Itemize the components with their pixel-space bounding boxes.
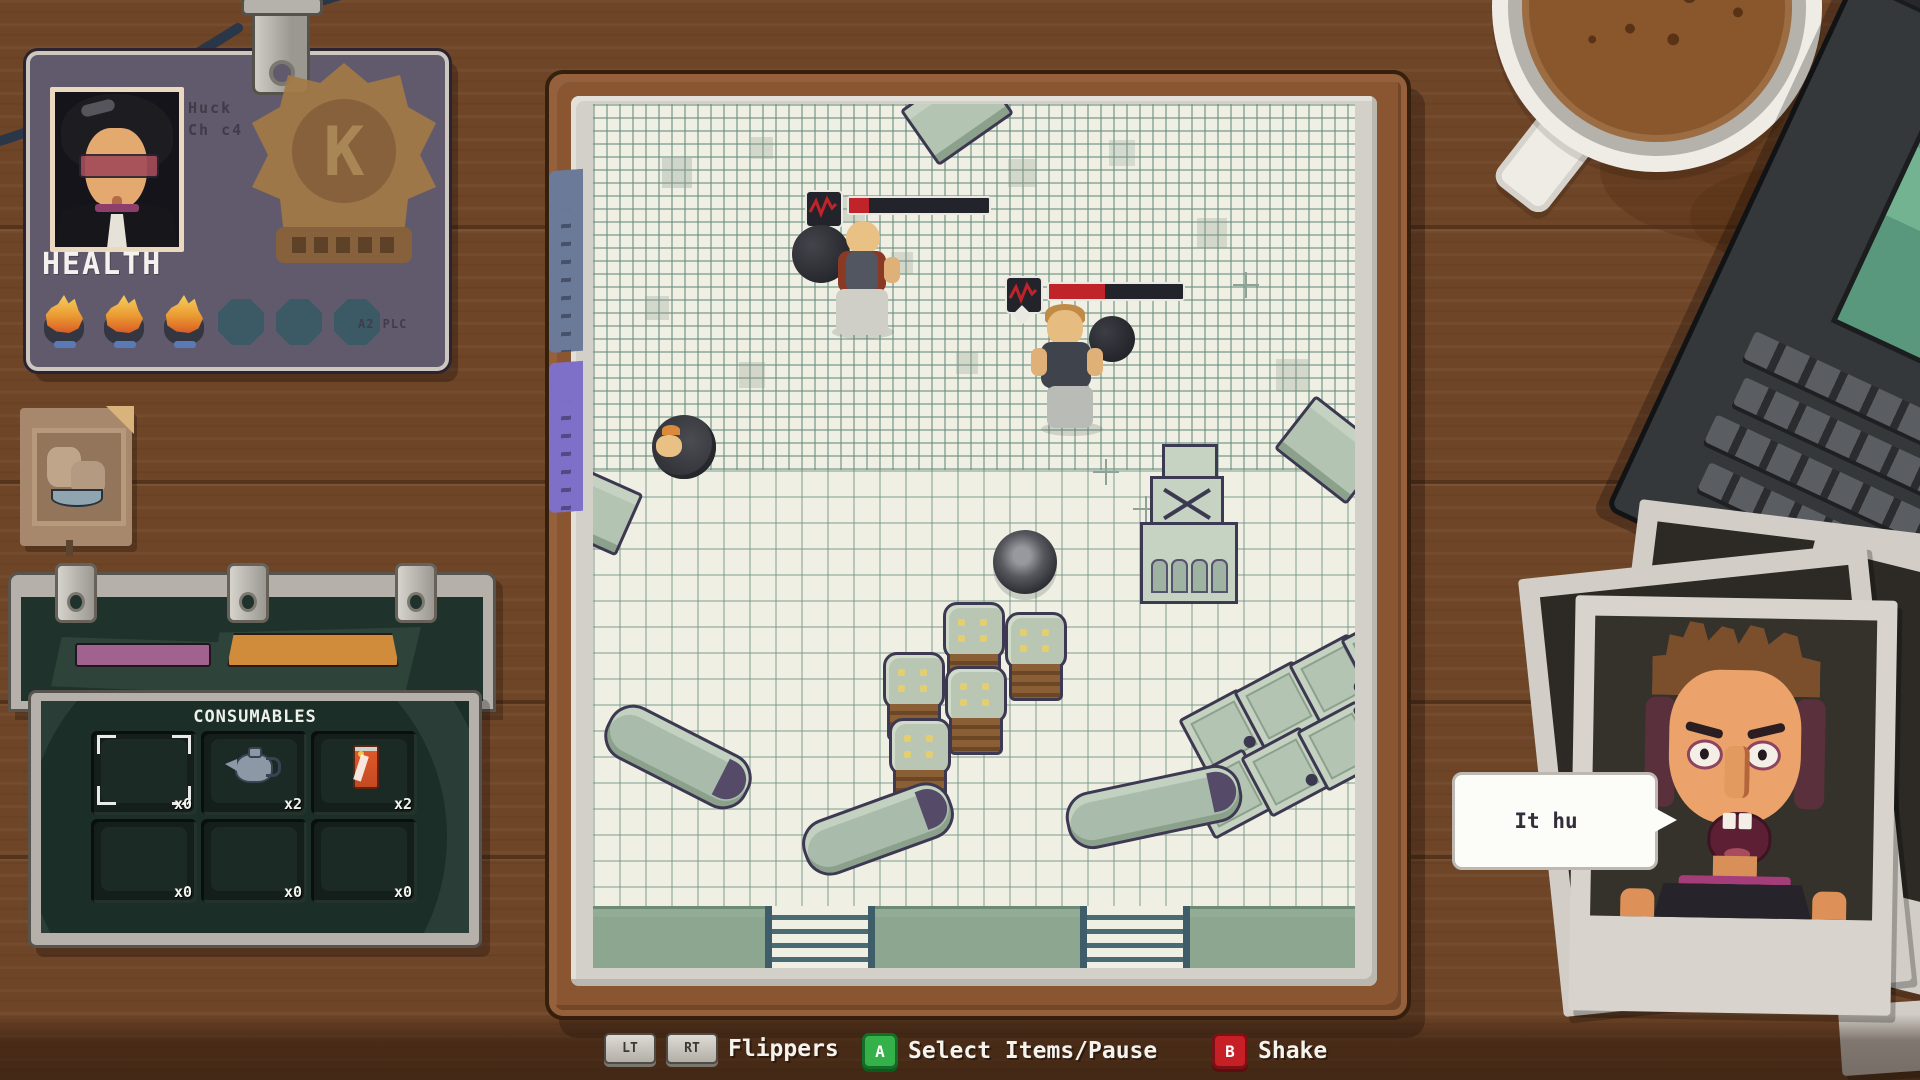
- dish-icon: [51, 489, 103, 507]
- badge-photo: [50, 87, 184, 252]
- case-hinge: [395, 563, 437, 623]
- enemy2-legs: [1047, 386, 1093, 428]
- consumable-slot-empty[interactable]: x0: [201, 819, 307, 903]
- ladder: [765, 906, 875, 968]
- bottom-ledge: [593, 906, 1355, 968]
- bookmark-tab-purple: [549, 361, 583, 513]
- enemy2-health-bar: [1047, 282, 1185, 301]
- rolled-enemy-face: [656, 435, 682, 457]
- emblem-letter: K: [324, 113, 365, 192]
- selection-cursor: [97, 786, 116, 805]
- kettle-icon: [235, 753, 273, 783]
- consumable-slot-selected[interactable]: x0: [91, 731, 197, 815]
- flame-icon: [165, 295, 203, 333]
- slot-count: x2: [394, 795, 412, 813]
- health-pip-full: [158, 293, 210, 351]
- selection-cursor: [97, 735, 116, 754]
- flame-icon: [105, 295, 143, 333]
- health-pip-empty: [276, 299, 322, 345]
- a-button[interactable]: A: [862, 1033, 898, 1069]
- rolled-enemy-ball: [652, 415, 716, 479]
- health-label: HEALTH: [42, 247, 162, 282]
- rolled-enemy-hair: [662, 425, 680, 435]
- portrait-glasses: [79, 154, 159, 178]
- enemy2-arm: [1031, 348, 1047, 376]
- slot-count: x0: [394, 883, 412, 901]
- package-label: [32, 428, 126, 526]
- polaroid-photo: [1590, 616, 1877, 921]
- health-pips: [38, 293, 392, 351]
- playfield-paper: [593, 104, 1355, 968]
- shoulder: [1812, 891, 1847, 920]
- crate-arched: [1140, 522, 1238, 604]
- lt-button[interactable]: LT: [604, 1033, 656, 1064]
- portrait-collar: [95, 204, 139, 212]
- ladder: [1080, 906, 1190, 968]
- face-nose: [1724, 746, 1750, 798]
- consumables-title: CONSUMABLES: [41, 707, 469, 727]
- shoulder: [1620, 888, 1655, 920]
- pencil-cross: [1233, 272, 1259, 298]
- tank-top: [1624, 882, 1841, 920]
- enemy2-head: [1047, 310, 1083, 346]
- enemy2-arm: [1087, 348, 1103, 376]
- control-group-select: A Select Items/Pause: [862, 1033, 1157, 1069]
- enemy2-health-fill: [1049, 284, 1105, 299]
- consumables-grid: x0 x2 x2 x0 x0 x0: [91, 731, 417, 903]
- enemy1-head: [846, 221, 880, 255]
- barrel: [945, 666, 1007, 754]
- slot-count: x0: [284, 883, 302, 901]
- selection-cursor: [172, 735, 191, 754]
- case-hinge: [227, 563, 269, 623]
- speech-text: It hu: [1514, 809, 1595, 833]
- slot-count: x0: [174, 795, 192, 813]
- enemy1-apron: [836, 289, 888, 335]
- flame-icon: [45, 295, 83, 333]
- cannonball: [993, 530, 1057, 594]
- enemy-bald-brawler: [808, 209, 903, 339]
- control-group-flippers: LT RT Flippers: [604, 1033, 839, 1064]
- barrel: [1005, 612, 1067, 700]
- consumable-slot-empty[interactable]: x0: [91, 819, 197, 903]
- briefcase-body: CONSUMABLES x0 x2 x2 x0: [28, 690, 482, 948]
- badge-name-line1: Huck: [188, 97, 243, 119]
- slot-count: x2: [284, 795, 302, 813]
- enemy1-arm: [884, 257, 900, 283]
- paper-smudges: [593, 104, 611, 122]
- badge-name-text: Huck Ch c4: [188, 97, 243, 141]
- b-button[interactable]: B: [1212, 1033, 1248, 1069]
- stowed-item-orange: [227, 633, 399, 667]
- stowed-item-purple: [75, 643, 211, 667]
- consumable-slot-kettle[interactable]: x2: [201, 731, 307, 815]
- health-pip-full: [98, 293, 150, 351]
- consumable-slot-empty[interactable]: x0: [311, 819, 417, 903]
- control-group-shake: B Shake: [1212, 1033, 1327, 1069]
- bookmark-tab-blue: [549, 169, 583, 353]
- case-hinge: [55, 563, 97, 623]
- health-pip-full: [38, 293, 90, 351]
- package-tear: [66, 540, 73, 556]
- consumable-slot-soda[interactable]: x2: [311, 731, 417, 815]
- badge-footer-text: A2 PLC: [358, 317, 407, 331]
- soda-can-icon: [353, 745, 379, 789]
- health-pip-empty: [218, 299, 264, 345]
- police-badge-emblem: K: [244, 55, 444, 305]
- pencil-cross: [1093, 459, 1119, 485]
- slot-count: x0: [174, 883, 192, 901]
- id-badge: K Huck Ch c4 HEALTH A2 PLC: [30, 55, 445, 367]
- crate-tower: [1140, 444, 1240, 604]
- case-interior: CONSUMABLES x0 x2 x2 x0: [41, 701, 469, 933]
- rt-button[interactable]: RT: [666, 1033, 718, 1064]
- select-items-label: Select Items/Pause: [908, 1038, 1157, 1064]
- badge-name-line2: Ch c4: [188, 119, 243, 141]
- enemy1-torso: [838, 251, 886, 293]
- speech-bubble: It hu: [1452, 772, 1658, 870]
- enemy-blond-brawler: [1023, 304, 1135, 436]
- shake-label: Shake: [1258, 1038, 1327, 1064]
- enemy2-torso: [1041, 342, 1091, 388]
- flippers-label: Flippers: [728, 1036, 839, 1062]
- paper-package: [20, 408, 132, 546]
- badge-clip-bar: [241, 0, 323, 16]
